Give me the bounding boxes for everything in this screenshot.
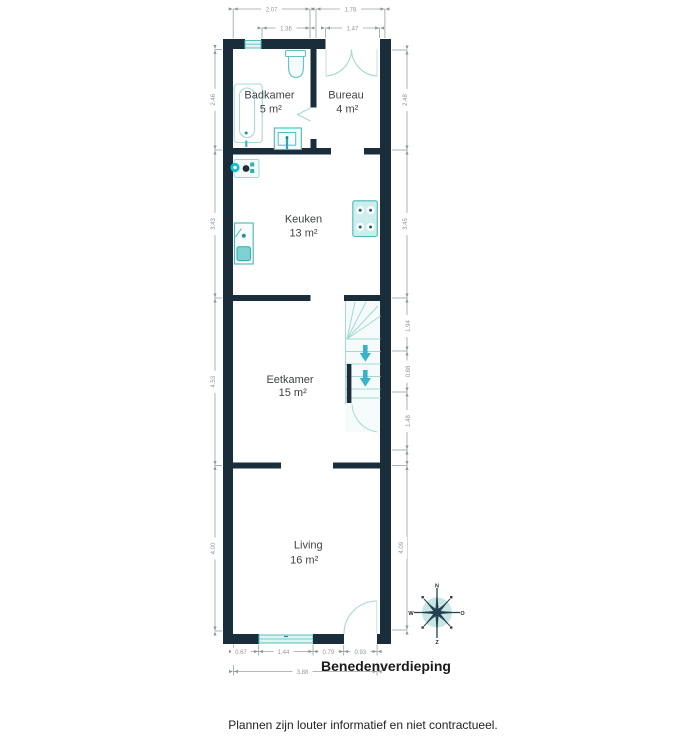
- svg-text:Keuken: Keuken: [285, 214, 322, 226]
- svg-text:1.47: 1.47: [347, 26, 359, 32]
- svg-text:5 m²: 5 m²: [260, 104, 282, 116]
- svg-text:Living: Living: [294, 540, 323, 552]
- svg-text:Plannen zijn louter informatie: Plannen zijn louter informatief en niet …: [228, 718, 498, 732]
- svg-text:Benedenverdieping: Benedenverdieping: [321, 658, 451, 674]
- svg-text:2.07: 2.07: [266, 7, 278, 13]
- svg-text:1.78: 1.78: [345, 7, 357, 13]
- svg-text:W: W: [408, 611, 414, 617]
- svg-text:1.48: 1.48: [406, 415, 412, 427]
- svg-text:0.79: 0.79: [323, 650, 335, 656]
- svg-text:3.45: 3.45: [403, 218, 409, 230]
- svg-text:3.43: 3.43: [211, 218, 217, 230]
- svg-text:4 m²: 4 m²: [336, 104, 358, 116]
- svg-text:Eetkamer: Eetkamer: [266, 374, 313, 386]
- svg-text:Bureau: Bureau: [328, 90, 363, 102]
- svg-text:16 m²: 16 m²: [290, 555, 318, 567]
- svg-text:1.94: 1.94: [406, 320, 412, 332]
- svg-text:2.48: 2.48: [403, 94, 409, 106]
- svg-text:3.88: 3.88: [297, 670, 309, 676]
- svg-text:N: N: [435, 584, 439, 590]
- svg-text:0.67: 0.67: [235, 650, 247, 656]
- svg-text:0.93: 0.93: [355, 650, 367, 656]
- svg-text:O: O: [460, 611, 465, 617]
- svg-text:0.88: 0.88: [406, 365, 412, 377]
- svg-text:13 m²: 13 m²: [289, 228, 317, 240]
- svg-text:15 m²: 15 m²: [279, 387, 307, 399]
- svg-text:4.09: 4.09: [399, 541, 405, 553]
- svg-text:4.00: 4.00: [211, 542, 217, 554]
- svg-text:4.53: 4.53: [211, 375, 217, 387]
- svg-text:2.46: 2.46: [211, 93, 217, 105]
- svg-text:Badkamer: Badkamer: [244, 90, 294, 102]
- svg-text:1.36: 1.36: [280, 26, 292, 32]
- svg-text:1.44: 1.44: [278, 650, 290, 656]
